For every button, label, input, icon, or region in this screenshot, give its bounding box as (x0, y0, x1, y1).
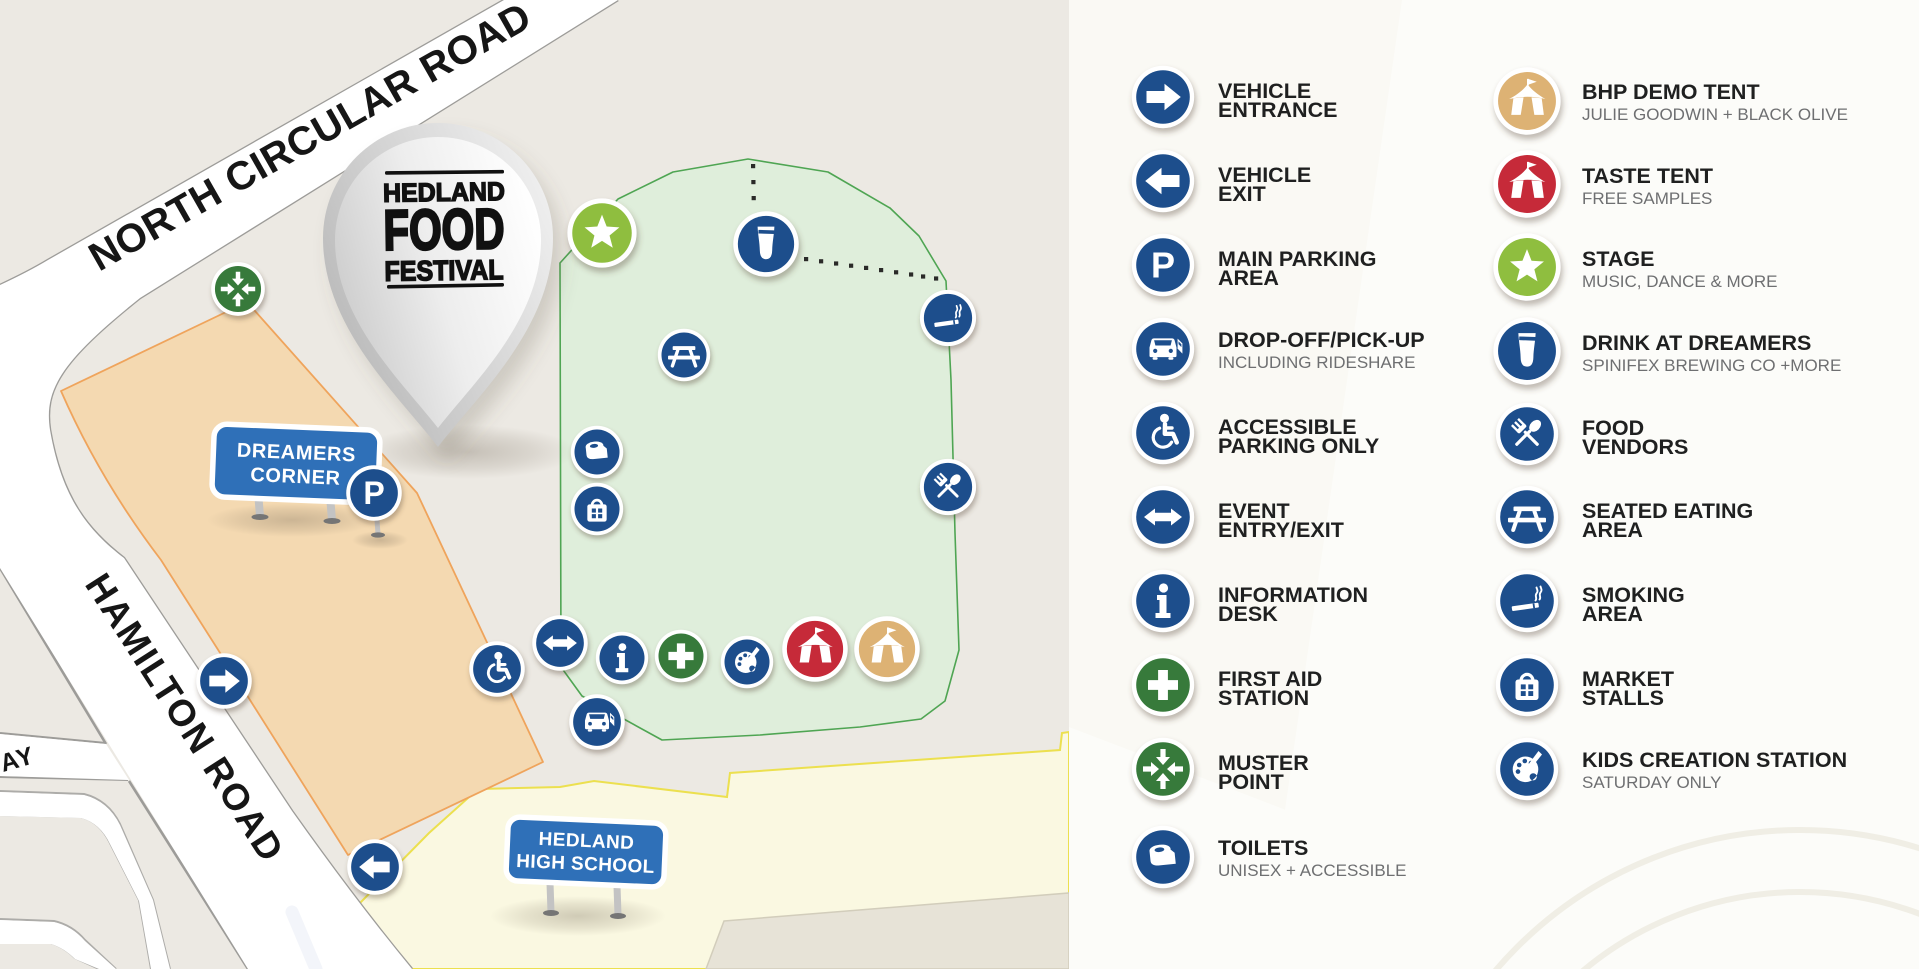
svg-text:STAGE: STAGE (1582, 247, 1654, 271)
svg-text:ENTRY/EXIT: ENTRY/EXIT (1218, 518, 1344, 542)
svg-text:EXIT: EXIT (1218, 182, 1266, 206)
svg-text:DRINK AT DREAMERS: DRINK AT DREAMERS (1582, 331, 1811, 355)
svg-text:HEDLAND: HEDLAND (538, 829, 635, 854)
svg-text:BHP DEMO TENT: BHP DEMO TENT (1582, 80, 1760, 104)
svg-text:INCLUDING RIDESHARE: INCLUDING RIDESHARE (1218, 353, 1415, 372)
svg-text:AREA: AREA (1582, 518, 1643, 542)
svg-text:FOOD: FOOD (383, 197, 505, 263)
svg-text:JULIE GOODWIN + BLACK OLIVE: JULIE GOODWIN + BLACK OLIVE (1582, 105, 1848, 124)
svg-text:STATION: STATION (1218, 686, 1309, 710)
svg-text:CORNER: CORNER (250, 464, 341, 490)
svg-text:AREA: AREA (1582, 602, 1643, 626)
svg-text:MUSIC, DANCE & MORE: MUSIC, DANCE & MORE (1582, 272, 1778, 291)
svg-text:POINT: POINT (1218, 770, 1284, 794)
svg-text:PARKING ONLY: PARKING ONLY (1218, 434, 1379, 458)
svg-text:FREE SAMPLES: FREE SAMPLES (1582, 189, 1712, 208)
svg-text:ENTRANCE: ENTRANCE (1218, 98, 1337, 122)
svg-text:STALLS: STALLS (1582, 686, 1664, 710)
svg-text:AREA: AREA (1218, 266, 1279, 290)
svg-text:VENDORS: VENDORS (1582, 435, 1688, 459)
svg-text:UNISEX + ACCESSIBLE: UNISEX + ACCESSIBLE (1218, 861, 1407, 880)
svg-text:DESK: DESK (1218, 602, 1278, 626)
svg-text:SATURDAY ONLY: SATURDAY ONLY (1582, 773, 1722, 792)
svg-text:FESTIVAL: FESTIVAL (384, 254, 503, 287)
svg-text:TASTE TENT: TASTE TENT (1582, 164, 1713, 188)
svg-text:SPINIFEX BREWING CO +MORE: SPINIFEX BREWING CO +MORE (1582, 356, 1841, 375)
svg-text:KIDS CREATION STATION: KIDS CREATION STATION (1582, 748, 1847, 772)
svg-text:DROP-OFF/PICK-UP: DROP-OFF/PICK-UP (1218, 328, 1425, 352)
svg-text:TOILETS: TOILETS (1218, 836, 1308, 860)
